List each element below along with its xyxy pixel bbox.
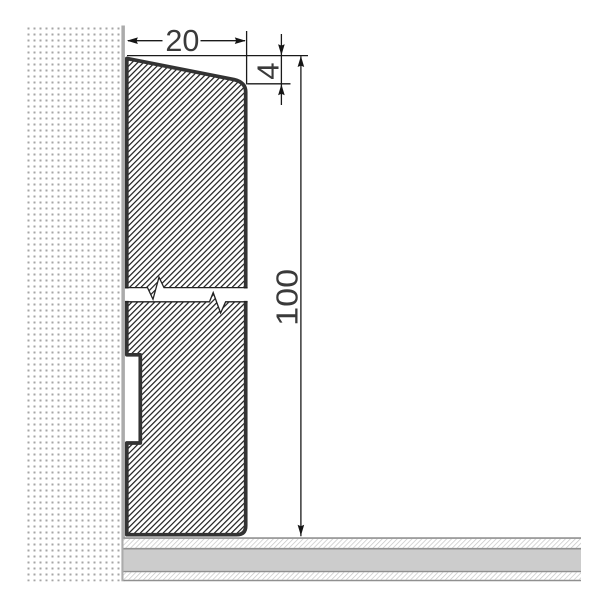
svg-text:100: 100 [269, 269, 304, 326]
svg-text:4: 4 [250, 62, 285, 79]
svg-text:20: 20 [165, 23, 199, 58]
